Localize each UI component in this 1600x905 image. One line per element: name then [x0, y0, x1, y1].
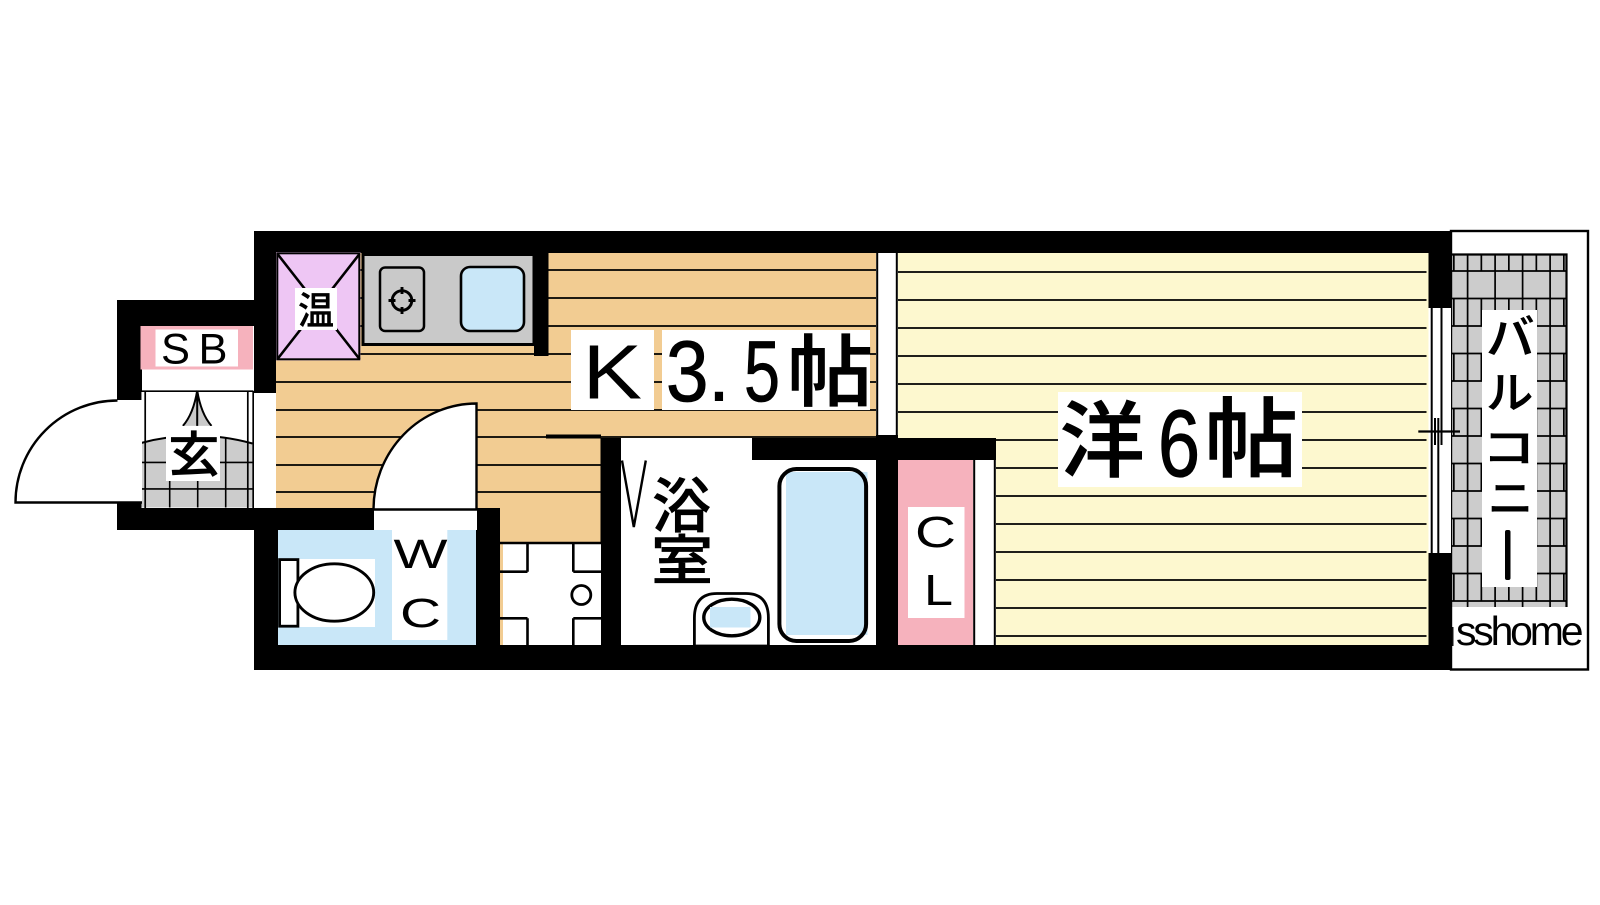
svg-text:3: 3 [666, 324, 709, 420]
svg-text:C: C [915, 509, 956, 557]
svg-text:K: K [583, 330, 643, 416]
svg-text:5: 5 [744, 324, 780, 420]
svg-text:S: S [161, 326, 190, 374]
svg-text:sshome: sshome [1456, 608, 1582, 654]
svg-text:B: B [199, 326, 228, 374]
svg-text:C: C [400, 590, 441, 636]
svg-text:W: W [394, 531, 448, 577]
svg-text:.: . [707, 324, 731, 420]
svg-text:L: L [924, 567, 953, 615]
svg-text:6: 6 [1158, 391, 1200, 497]
